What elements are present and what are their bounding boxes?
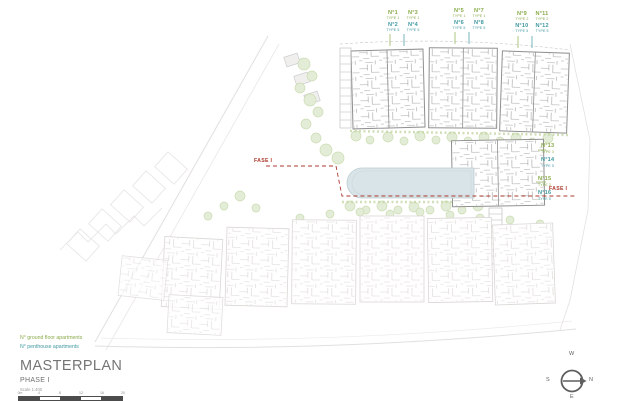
scale-tick: 12 <box>79 391 83 395</box>
masterplan-drawing: N°1TYPE 1 N°3TYPE 1 N°2TYPE 5 N°4TYPE 5 … <box>0 0 630 401</box>
legend-ground-floor: N° ground floor apartments <box>20 334 82 343</box>
compass-north: N <box>589 377 593 383</box>
scale-tick: 20 <box>121 391 125 395</box>
building-block-1 <box>351 49 425 129</box>
unit-type: TYPE 2 <box>516 17 529 21</box>
compass-east: E <box>570 394 574 400</box>
unit-type: TYPE 5 <box>407 28 420 32</box>
future-phase-houses <box>118 216 555 335</box>
compass-south: S <box>546 377 550 383</box>
unit-type: TYPE 1 <box>407 16 420 20</box>
unit-type: TYPE 5 <box>541 164 554 168</box>
compass-icon <box>550 352 596 400</box>
ground-floor-row: N°9TYPE 2 N°11TYPE 2 <box>516 11 549 22</box>
scale-tick: 4 <box>38 391 40 395</box>
site-plan-svg <box>0 0 630 401</box>
scale-tick: 0m <box>18 391 23 395</box>
scale-tick: 16 <box>100 391 104 395</box>
penthouse-row: N°2TYPE 5 N°4TYPE 5 <box>387 22 420 33</box>
unit-label-group-1: N°1TYPE 1 N°3TYPE 1 N°2TYPE 5 N°4TYPE 5 <box>370 10 436 32</box>
legend: N° ground floor apartments N° penthouse … <box>20 334 82 352</box>
penthouse-row: N°10TYPE 5 N°12TYPE 5 <box>515 23 549 34</box>
swimming-pool <box>347 168 474 198</box>
unit-number: N°14 <box>541 157 554 164</box>
unit-number: N°15 <box>538 176 551 183</box>
parking-strip <box>340 48 351 128</box>
unit-label-group-3: N°9TYPE 2 N°11TYPE 2 N°10TYPE 5 N°12TYPE… <box>496 11 568 33</box>
scale-bar: 0m 4 8 12 16 20 <box>18 391 123 401</box>
penthouse-row: N°6TYPE 5 N°8TYPE 5 <box>453 20 486 31</box>
phase-label-right: FASE I <box>549 186 567 192</box>
unit-type: TYPE 5 <box>473 26 486 30</box>
building-block-2 <box>429 48 498 129</box>
ground-floor-row: N°5TYPE 1 N°7TYPE 1 <box>453 8 486 19</box>
unit-label-group-2: N°5TYPE 1 N°7TYPE 1 N°6TYPE 5 N°8TYPE 5 <box>436 8 502 30</box>
unit-number: N°13 <box>541 143 554 150</box>
unit-type: TYPE 5 <box>538 197 551 201</box>
unit-type: TYPE 5 <box>536 29 549 33</box>
scale-bar-ticks: 0m 4 8 12 16 20 <box>18 391 123 396</box>
unit-type: TYPE 1 <box>473 14 486 18</box>
scale-bar-segments <box>18 396 123 401</box>
ground-floor-row: N°1TYPE 1 N°3TYPE 1 <box>387 10 420 21</box>
unit-type: TYPE 1 <box>387 16 400 20</box>
phase-label-left: FASE I <box>254 158 272 164</box>
unit-type: TYPE 2 <box>535 17 548 21</box>
unit-type: TYPE 1 <box>453 14 466 18</box>
legend-penthouse: N° penthouse apartments <box>20 343 82 352</box>
phase-subtitle: PHASE I <box>20 377 50 384</box>
scale-tick: 8 <box>59 391 61 395</box>
unit-type: TYPE 5 <box>453 26 466 30</box>
unit-type: TYPE 3 <box>541 150 554 154</box>
unit-type: TYPE 5 <box>515 29 528 33</box>
compass-west: W <box>569 351 574 357</box>
unit-type: TYPE 5 <box>387 28 400 32</box>
building-block-3 <box>500 51 570 133</box>
page-title: MASTERPLAN <box>20 358 122 374</box>
unit-label-group-side-1: N°13TYPE 3 N°14TYPE 5 <box>541 143 554 168</box>
